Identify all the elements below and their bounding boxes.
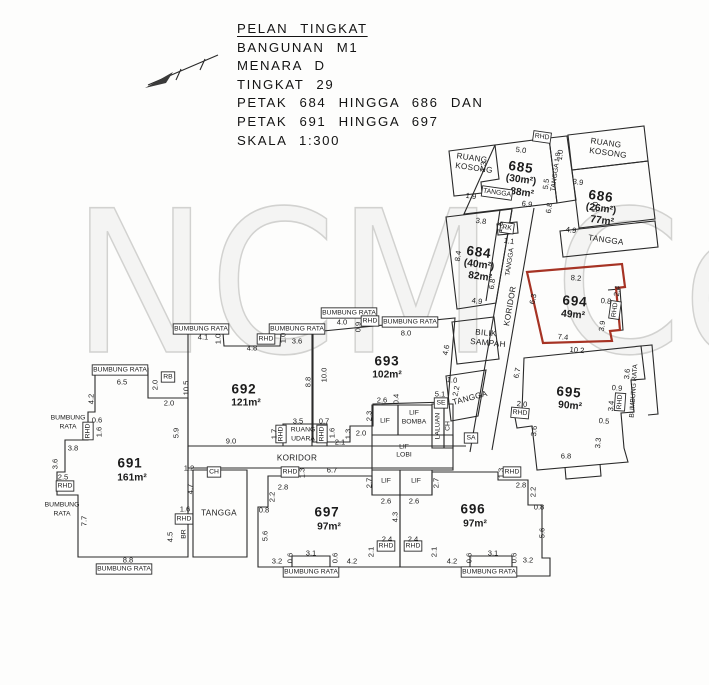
dim-label: 1.6 [180, 505, 191, 514]
bumbung-rata: BUMBUNG RATA [284, 569, 338, 576]
rhd: RHD [505, 469, 520, 476]
dim-label: 3.9 [572, 177, 584, 187]
rhd: RHD [259, 336, 274, 343]
room-lif-bomba: LIF [409, 410, 419, 417]
rhd: RHD [177, 516, 192, 523]
dim-label: 1.0 [214, 334, 223, 345]
unit-692: 692 [232, 382, 257, 397]
dim-label: 8.0 [401, 329, 412, 338]
dim-label: 4.2 [347, 557, 358, 566]
unit-697: 697 [315, 505, 340, 520]
bumbung-rata: BUMBUNG RATA [383, 319, 437, 326]
rhd: RHD [616, 394, 624, 409]
dim-label: 1.0 [555, 149, 565, 161]
dim-label: 0.5 [598, 416, 609, 426]
bumbung-rata: BUMBUNG RATA [462, 569, 516, 576]
north-arrow-icon [145, 55, 218, 88]
dim-label: 4.2 [87, 394, 96, 405]
dim-label: 2.2 [268, 492, 277, 503]
dim-label: 10.0 [320, 368, 329, 383]
rhd: RHD [363, 318, 378, 325]
dim-label: 2.0 [356, 429, 367, 438]
dim-label: 2.1 [430, 547, 439, 558]
unit-696: 696 [461, 502, 486, 517]
dim-label: 2.3 [365, 411, 374, 422]
dim-label: 0.8 [259, 506, 270, 515]
notch-697 [292, 556, 330, 567]
room-ruang-udara: RUANG [291, 427, 316, 434]
dim-label: 2.2 [529, 487, 538, 498]
unit-691-area: 161m² [117, 473, 147, 484]
dim-label: 0.6 [92, 416, 103, 425]
dim-label: 6.8 [487, 278, 497, 290]
floor-plan-page: NCM Co PELAN TINGKAT BANGUNAN M1 MENARA … [0, 0, 709, 685]
strip-695-right [641, 345, 658, 415]
floor-plan-drawing: 685(30m²)88m²686(26m²)77m²684(40m²)82m²6… [0, 0, 709, 685]
dim-label: 4.3 [478, 161, 488, 173]
unit-695-area: 90m² [558, 399, 583, 412]
dim-label: 2.7 [432, 478, 441, 489]
room-lif: LIF [381, 478, 391, 485]
dim-label: 6.9 [521, 199, 533, 209]
dim-label: 0.6 [331, 553, 340, 564]
unit-697-area: 97m² [317, 522, 341, 533]
dim-label: 2.0 [164, 399, 175, 408]
room-br: BR [181, 529, 188, 539]
dim-label: 4.9 [471, 296, 483, 306]
dim-label: 3.6 [622, 368, 632, 379]
unit-693: 693 [375, 354, 400, 369]
dim-label: 4.0 [337, 318, 348, 327]
dim-label: 6.5 [117, 378, 128, 387]
outline-lif-lobi [372, 435, 453, 470]
dim-label: 0.6 [510, 553, 519, 564]
dim-label: 10.2 [569, 345, 585, 355]
room-lif-lobi: LOBI [396, 452, 412, 459]
dim-label: 5.6 [261, 531, 270, 542]
dim-label: 8.8 [123, 556, 134, 565]
dim-label: 2.4 [408, 535, 419, 544]
dim-label: 4.1 [198, 333, 209, 342]
rhd: RHD [319, 427, 326, 442]
room-ruang-udara: UDARA [291, 436, 315, 443]
dim-label: 3.8 [68, 444, 79, 453]
dim-label: 3.9 [597, 320, 607, 332]
dim-label: 3.6 [292, 337, 303, 346]
bumbung-rata: BUMBUNG [51, 415, 86, 422]
dim-label: 1.2 [184, 464, 195, 473]
dim-label: 7.4 [557, 332, 568, 342]
unit-695: 695 [556, 383, 582, 400]
notch-696 [470, 556, 512, 567]
dim-label: 0.9 [611, 383, 622, 393]
dim-label: 1.0 [446, 375, 457, 385]
labels-layer: 685(30m²)88m²686(26m²)77m²684(40m²)82m²6… [45, 131, 640, 577]
room-se: SE [436, 400, 446, 407]
dim-label: 6.7 [512, 367, 523, 379]
room-lif: LIF [380, 418, 390, 425]
dim-label: 3.2 [272, 557, 283, 566]
koridor-label: KORIDOR [277, 454, 317, 463]
dim-label: 2.7 [365, 478, 374, 489]
dim-label: 1.6 [95, 427, 104, 438]
rhd: RHD [512, 409, 527, 417]
dim-label: 2.0 [151, 380, 160, 391]
rhd: RHD [278, 427, 285, 442]
room-ruang-kosong-2: KOSONG [589, 146, 628, 160]
dim-label: 6.8 [544, 202, 554, 214]
dim-label: 8.8 [304, 377, 313, 388]
dim-label: 3.4 [606, 400, 616, 411]
unit-692-area: 121m² [231, 398, 261, 409]
unit-691: 691 [118, 456, 143, 471]
dim-label: 2.6 [381, 497, 392, 506]
dim-label: 4.2 [447, 557, 458, 566]
dim-label: 3.3 [593, 437, 603, 448]
room-laluan: LALUAN [435, 413, 442, 440]
dim-label: 5.9 [172, 428, 181, 439]
rhd: RHD [379, 543, 394, 550]
dim-label: 4.3 [391, 512, 400, 523]
dim-label: 1.3 [344, 429, 353, 440]
dim-label: 0.7 [319, 417, 330, 426]
bumbung-rata: RATA [53, 511, 71, 518]
rhd: RHD [58, 483, 73, 490]
room-rb: RB [163, 374, 173, 381]
dim-label: 5.6 [538, 528, 547, 539]
dim-label: 3.6 [51, 459, 60, 470]
dim-label: 4.7 [186, 484, 195, 495]
room-lif-bomba: BOMBA [402, 419, 427, 426]
room-tangga: TANGGA [505, 247, 516, 276]
dim-label: 0.6 [286, 553, 295, 564]
dim-label: 4.8 [247, 344, 258, 353]
dim-label: 0.4 [392, 394, 401, 405]
dim-label: 9.0 [226, 437, 237, 446]
dim-label: 4.6 [441, 344, 452, 356]
room-lif: LIF [411, 478, 421, 485]
dim-label: 4.5 [166, 532, 175, 543]
dim-label: 5.0 [590, 201, 600, 213]
room-bilik-sampah: SAMPAH [470, 337, 506, 349]
dim-label: 6.8 [561, 452, 572, 461]
dim-label: 2.0 [516, 399, 527, 409]
unit-693-area: 102m² [372, 370, 402, 381]
dim-label: 2.6 [377, 396, 388, 405]
dim-label: 3.5 [293, 417, 304, 426]
dim-label: 4.9 [565, 225, 577, 235]
dim-label: 2.5 [58, 473, 69, 482]
bumbung-rata: RATA [59, 424, 77, 431]
dim-label: 1.3 [497, 468, 506, 479]
dim-label: 6.3 [528, 293, 539, 305]
room-ch: CH [445, 421, 452, 431]
dim-label: 1.1 [503, 236, 515, 246]
room-tangga: TANGGA [588, 233, 625, 247]
bumbung-rata: BUMBUNG [45, 502, 80, 509]
dim-label: 6.7 [327, 466, 338, 475]
dim-label: 5.1 [435, 390, 446, 399]
dim-label: 3.1 [488, 549, 499, 558]
dim-label: 8.4 [453, 250, 463, 262]
walls-layer [57, 126, 658, 576]
unit-694: 694 [562, 292, 588, 309]
dim-label: 1.3 [298, 468, 307, 479]
dim-label: 3.1 [306, 549, 317, 558]
dim-label: 8.2 [570, 273, 581, 283]
dim-label: 0.6 [465, 553, 474, 564]
room-tangga: TANGGA [201, 509, 237, 518]
dim-label: 1.0 [279, 333, 288, 344]
bumbung-rata: BUMBUNG RATA [97, 566, 151, 573]
dim-label: 7.7 [80, 516, 89, 527]
dim: 1.9 [465, 191, 477, 201]
dim-label: 2.4 [612, 285, 622, 297]
rhd: RHD [406, 543, 421, 550]
koridor-label: KORIDOR [502, 285, 518, 326]
dim-label: 0.8 [534, 503, 545, 512]
dim-label: 5.5 [541, 178, 551, 190]
bumbung-rata: BUMBUNG RATA [93, 367, 147, 374]
bumbung-rata: BUMBUNG RATA [174, 326, 228, 333]
dim-label: 2.8 [516, 481, 527, 490]
dim-label: 0.8 [600, 296, 611, 306]
dim-label: 5.0 [515, 145, 527, 155]
dim-label: 2.1 [367, 547, 376, 558]
room-sa: SA [466, 435, 476, 442]
rhd: RHD [85, 424, 92, 439]
unit-694-area: 49m² [561, 308, 586, 321]
dim-label: 3.8 [475, 216, 487, 226]
dim-label: 2.4 [382, 535, 393, 544]
room-lif-lobi: LIF [399, 444, 409, 451]
bumbung-rata: BUMBUNG RATA [270, 326, 324, 333]
dim-label: 10.5 [182, 381, 191, 396]
dim-label: 1.7 [270, 429, 279, 440]
dim-label: 2.8 [278, 483, 289, 492]
unit-696-area: 97m² [463, 519, 487, 530]
rhd: RHD [283, 469, 298, 476]
room-ch: CH [209, 469, 219, 476]
dim-label: 3.6 [529, 425, 539, 436]
dim-label: 0.9 [354, 322, 363, 333]
dim-label: 3.2 [523, 556, 534, 565]
dim-label: 2.6 [409, 497, 420, 506]
dim-label: 1.6 [495, 221, 505, 233]
